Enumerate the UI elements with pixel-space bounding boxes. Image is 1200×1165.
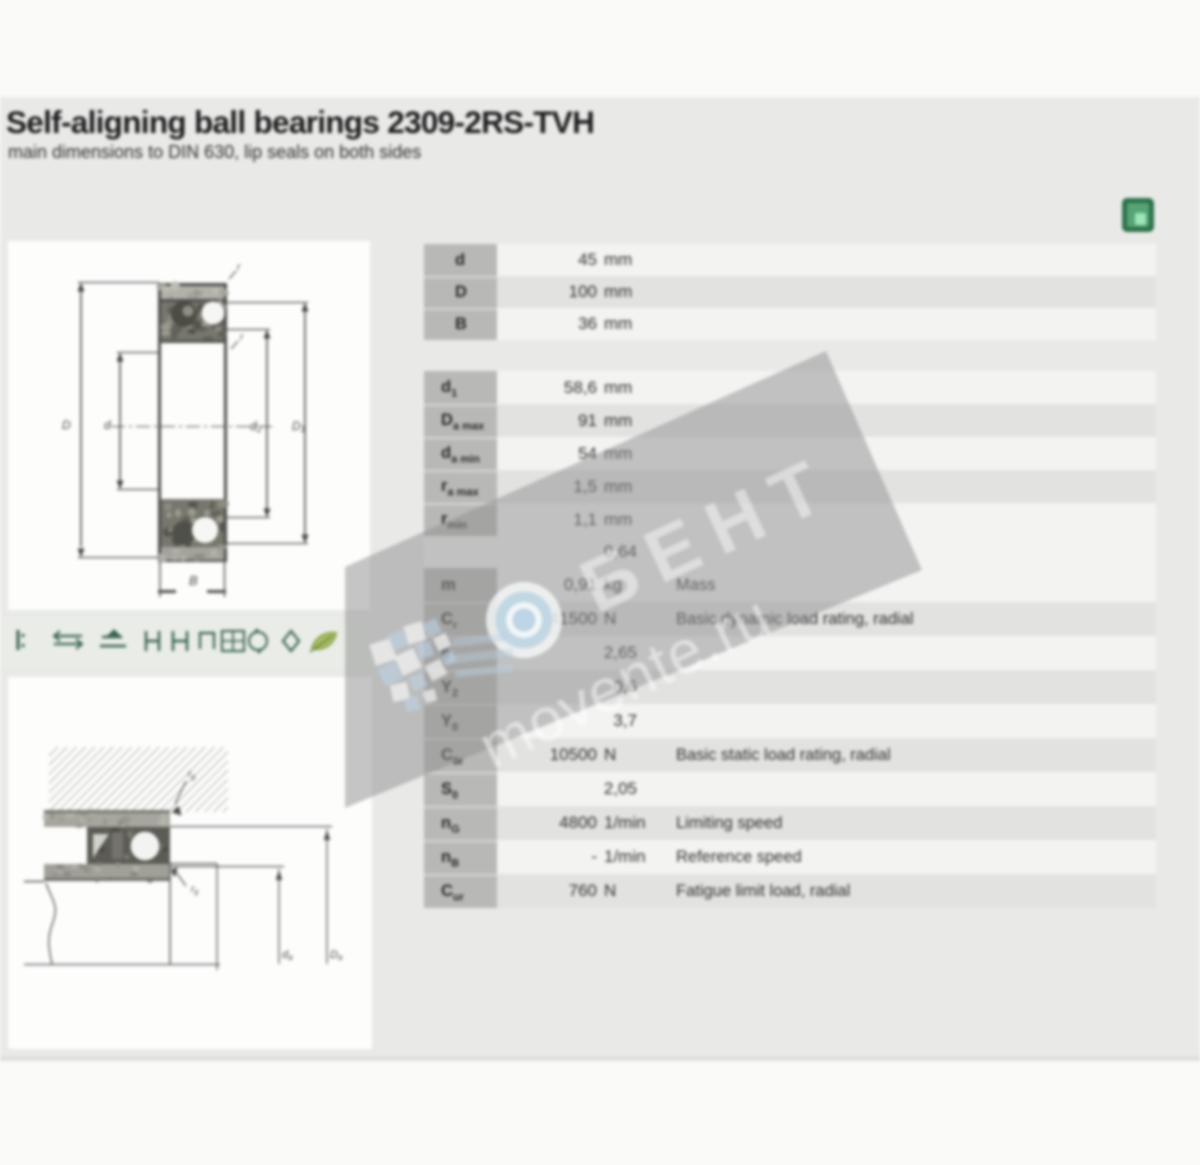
svg-text:B: B xyxy=(189,573,198,588)
svg-text:r: r xyxy=(237,262,241,273)
svg-text:rg: rg xyxy=(191,884,198,896)
svg-text:d2: d2 xyxy=(250,419,262,434)
svg-text:d: d xyxy=(104,418,111,432)
svg-text:Da: Da xyxy=(330,949,343,962)
svg-text:r: r xyxy=(240,332,244,343)
svg-text:da: da xyxy=(282,949,293,962)
svg-text:D1: D1 xyxy=(292,419,306,434)
svg-text:D: D xyxy=(62,418,71,432)
